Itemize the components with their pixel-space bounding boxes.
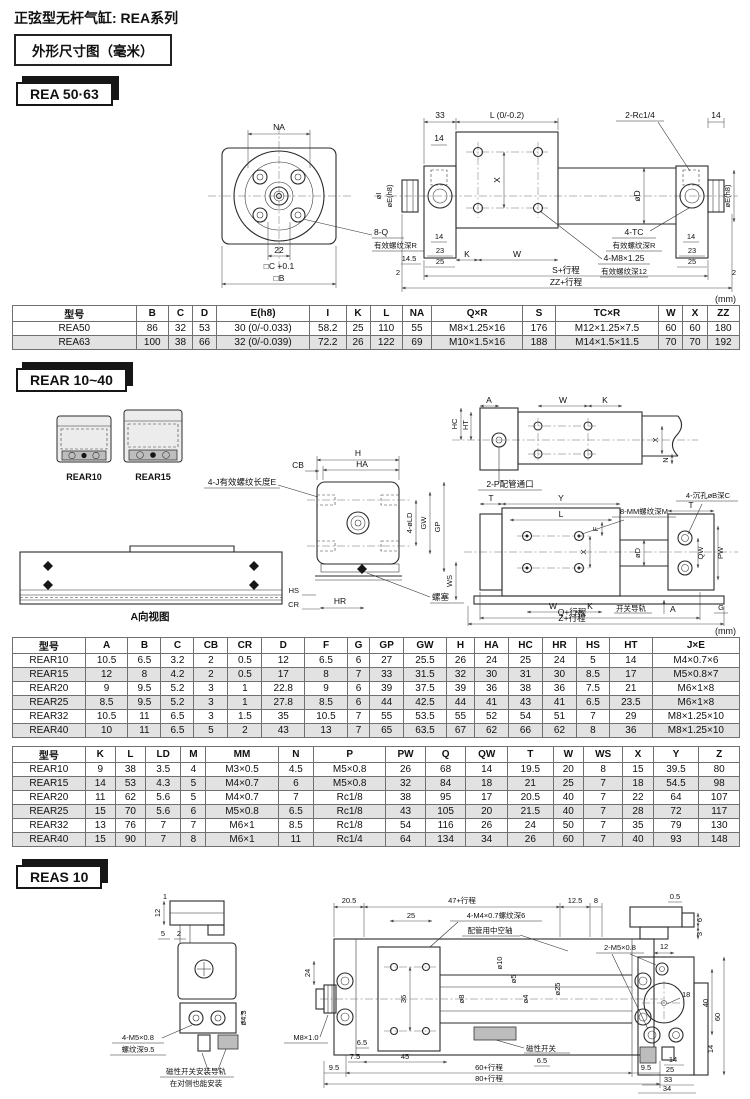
right-end-bracket (676, 166, 708, 258)
column-header: LD (146, 747, 181, 763)
value-cell: 10.5 (85, 710, 128, 724)
column-header: C (168, 306, 192, 322)
column-header: K (85, 747, 115, 763)
dim-s-stroke: S+行程 (552, 265, 580, 275)
value-cell: 27 (370, 654, 404, 668)
dim-t2: T (688, 500, 693, 510)
value-cell: 43 (509, 696, 543, 710)
column-header: D (262, 638, 305, 654)
value-cell: 10.5 (85, 654, 128, 668)
dim-25: 25 (407, 911, 415, 920)
value-cell: 93 (653, 833, 699, 847)
column-header: HS (576, 638, 609, 654)
column-header: C (161, 638, 194, 654)
column-header: M (181, 747, 206, 763)
value-cell: Rc1/8 (314, 791, 386, 805)
value-cell: 8.5 (305, 696, 348, 710)
column-header: CB (194, 638, 228, 654)
header-row: 型号KLLDMMMNPPWQQWTWWSXYZ (13, 747, 740, 763)
value-cell: 64 (386, 833, 425, 847)
value-cell: 11 (128, 724, 161, 738)
thread-note-95: 螺纹深9.5 (122, 1044, 155, 1054)
dim-6: 6 (695, 918, 704, 922)
rea-side-view: øI øE(h8) X øD øE(h8) 3 (374, 110, 738, 292)
dim-3: 3 (695, 932, 704, 936)
value-cell: 66 (509, 724, 543, 738)
dim-k2: K (602, 395, 608, 405)
dim-o8: ø8 (457, 995, 466, 1004)
value-cell: 148 (699, 833, 740, 847)
dim-od2: øD (633, 547, 642, 558)
value-cell: 30 (475, 668, 509, 682)
value-cell: 58.2 (310, 322, 347, 336)
value-cell: 98 (699, 777, 740, 791)
column-header: 型号 (13, 747, 86, 763)
value-cell: 90 (115, 833, 145, 847)
dim-75: 7.5 (350, 1052, 360, 1061)
value-cell: 38 (115, 763, 145, 777)
model-cell: REAR25 (13, 805, 86, 819)
column-header: D (193, 306, 217, 322)
dim-14-topright: 14 (711, 110, 721, 120)
value-cell: 4.3 (146, 777, 181, 791)
reas-body (178, 943, 236, 999)
value-cell: 134 (425, 833, 466, 847)
value-cell: 100 (136, 336, 168, 350)
column-header: Z (699, 747, 740, 763)
value-cell: 188 (523, 336, 555, 350)
value-cell: 30 (0/-0.033) (217, 322, 310, 336)
model-cell: REAR15 (13, 777, 86, 791)
rear-top-right-view: HC HT A W K X N 2-P配管通口 (450, 395, 698, 490)
dim-25-left: 25 (436, 257, 444, 266)
value-cell: 7 (347, 710, 369, 724)
value-cell: 32 (386, 777, 425, 791)
table-row: REAR151284.220.517873331.5323031308.517M… (13, 668, 740, 682)
value-cell: 9 (305, 682, 348, 696)
table-row: REA63100386632 (0/-0.039)72.22612269M10×… (13, 336, 740, 350)
value-cell: 25.5 (404, 654, 447, 668)
dim-23-left: 23 (436, 246, 444, 255)
column-header: H (446, 638, 474, 654)
value-cell: 38 (168, 336, 192, 350)
switch-rail (474, 596, 724, 604)
value-cell: 21 (507, 777, 553, 791)
dim-hs: HS (289, 586, 299, 595)
dim-o5: ø5 (509, 975, 518, 984)
dim-w2: W (559, 395, 567, 405)
value-cell: 24 (507, 819, 553, 833)
subtitle-box: 外形尺寸图（毫米） (14, 34, 172, 66)
value-cell: 176 (523, 322, 555, 336)
dim-od: øD (632, 190, 642, 201)
value-cell: 8.5 (278, 819, 313, 833)
value-cell: 64 (653, 791, 699, 805)
value-cell: 5 (576, 654, 609, 668)
rea-dimension-table: 型号BCDE(h8)IKLNAQ×RSTC×RWXZZREA5086325330… (12, 305, 740, 350)
value-cell: 76 (115, 819, 145, 833)
dim-k3: K (587, 601, 593, 611)
value-cell: 7 (278, 791, 313, 805)
value-cell: 5 (194, 724, 228, 738)
rear-bottom-right-view: T Y L 8-MM螺纹深M 4-沉孔øB深C T F X øD QW PW W (464, 491, 738, 626)
column-header: E(h8) (217, 306, 310, 322)
switch-rail-note-2: 在对侧也能安装 (170, 1078, 223, 1088)
value-cell: 8.5 (85, 696, 128, 710)
value-cell: 10 (85, 724, 128, 738)
value-cell: 3 (194, 682, 228, 696)
value-cell: 14 (85, 777, 115, 791)
model-cell: REA63 (13, 336, 137, 350)
dim-65a: 6.5 (357, 1038, 367, 1047)
value-cell: 14 (466, 763, 508, 777)
value-cell: 5.6 (146, 805, 181, 819)
dim-na: NA (273, 122, 285, 132)
left-end-bracket (424, 166, 456, 258)
dim-2: 2 (177, 929, 181, 938)
plug-label: 螺塞 (432, 592, 450, 602)
value-cell: 3.5 (146, 763, 181, 777)
dim-h: H (355, 448, 361, 458)
dim-x2: X (651, 437, 660, 442)
value-cell: 25 (346, 322, 370, 336)
table-row: REAR32137677M6×18.5Rc1/85411626245073579… (13, 819, 740, 833)
model-cell: REAR20 (13, 682, 86, 696)
column-header: CR (228, 638, 262, 654)
value-cell: 62 (475, 724, 509, 738)
value-cell: M4×0.7×6 (652, 654, 739, 668)
value-cell: 13 (305, 724, 348, 738)
column-header: B (136, 306, 168, 322)
value-cell: 7 (583, 833, 622, 847)
thread-label-m8: M8×1.0 (293, 1033, 318, 1042)
value-cell: 34 (466, 833, 508, 847)
value-cell: 22.8 (262, 682, 305, 696)
column-header: F (305, 638, 348, 654)
value-cell: 107 (699, 791, 740, 805)
rear-drawing: REAR10 REAR15 H HA CB 4-J有效螺纹长度E (12, 394, 738, 626)
dim-oi: øI (374, 193, 383, 200)
dim-2-right: 2 (732, 268, 736, 277)
dim-60-stroke: 60+行程 (475, 1062, 503, 1072)
value-cell: 105 (425, 805, 466, 819)
value-cell: 53 (115, 777, 145, 791)
value-cell: 41 (542, 696, 576, 710)
dim-c: □C +0.1 (264, 261, 295, 271)
value-cell: 40 (553, 791, 583, 805)
model-cell: REAR10 (13, 763, 86, 777)
model-cell: REAR40 (13, 833, 86, 847)
value-cell: 5 (181, 777, 206, 791)
dim-pw: PW (716, 546, 725, 559)
dim-zz-stroke: ZZ+行程 (550, 277, 583, 287)
dim-34: 34 (663, 1084, 671, 1093)
dim-t1: T (488, 493, 493, 503)
value-cell: M10×1.5×16 (431, 336, 522, 350)
page-title: 正弦型无杆气缸: REA系列 (14, 8, 740, 28)
column-header: ZZ (707, 306, 740, 322)
value-cell: 69 (402, 336, 431, 350)
value-cell: 35 (623, 819, 653, 833)
value-cell: 6.5 (305, 654, 348, 668)
dim-o43: ø4.3 (239, 1010, 248, 1025)
value-cell: 26 (466, 819, 508, 833)
value-cell: 63.5 (404, 724, 447, 738)
column-header: T (507, 747, 553, 763)
table-row: REAR3210.5116.531.53510.575553.555525451… (13, 710, 740, 724)
column-header: S (523, 306, 555, 322)
thread-label-tc: 4-TC (625, 227, 644, 237)
dim-14b: 14 (669, 1055, 677, 1064)
value-cell: 0.5 (228, 654, 262, 668)
column-header: PW (386, 747, 425, 763)
dim-w3: W (549, 601, 557, 611)
value-cell: Rc1/8 (314, 819, 386, 833)
value-cell: M12×1.25×7.5 (555, 322, 659, 336)
value-cell: 6 (347, 682, 369, 696)
value-cell: 51 (542, 710, 576, 724)
dim-40: 40 (701, 999, 710, 1007)
table-row: REAR4010116.552431376563.567626662836M8×… (13, 724, 740, 738)
reas-mid-view: 20.5 47+行程 12.5 8 25 4-M4×0.7螺纹深6 配管用中空轴 (284, 895, 664, 1088)
value-cell: 60 (659, 322, 683, 336)
dim-g: G (718, 603, 724, 612)
dim-14-port: 14 (434, 133, 444, 143)
model-cell: REAR32 (13, 710, 86, 724)
value-cell: 11 (128, 710, 161, 724)
value-cell: 26 (386, 763, 425, 777)
value-cell: 3 (194, 710, 228, 724)
dim-12: 12 (153, 909, 162, 917)
value-cell: 41 (475, 696, 509, 710)
value-cell: 21 (609, 682, 652, 696)
rear-dimension-table-1: 型号ABCCBCRDFGGPGWHHAHCHRHSHTJ×EREAR1010.5… (12, 637, 740, 738)
dim-18: 18 (682, 990, 690, 999)
value-cell: 12 (85, 668, 128, 682)
column-header: QW (466, 747, 508, 763)
value-cell: M5×0.8 (206, 805, 278, 819)
value-cell: 5.2 (161, 682, 194, 696)
column-header: MM (206, 747, 278, 763)
value-cell: M8×1.25×10 (652, 710, 739, 724)
value-cell: 43 (262, 724, 305, 738)
value-cell: 62 (115, 791, 145, 805)
value-cell: 9 (85, 682, 128, 696)
value-cell: 15 (623, 763, 653, 777)
value-cell: 18 (466, 777, 508, 791)
value-cell: 39 (446, 682, 474, 696)
value-cell: 39.5 (653, 763, 699, 777)
value-cell: 3 (194, 696, 228, 710)
value-cell: 70 (115, 805, 145, 819)
value-cell: 7 (583, 819, 622, 833)
rear-dimension-table-2: 型号KLLDMMMNPPWQQWTWWSXYZREAR109383.54M3×0… (12, 746, 740, 847)
value-cell: 3.2 (161, 654, 194, 668)
value-cell: 17 (609, 668, 652, 682)
dim-l: L (0/-0.2) (490, 110, 524, 120)
value-cell: 79 (653, 819, 699, 833)
column-header: P (314, 747, 386, 763)
dim-14-right: 14 (687, 232, 695, 241)
value-cell: M6×1×8 (652, 682, 739, 696)
value-cell: 192 (707, 336, 740, 350)
column-header: A (85, 638, 128, 654)
value-cell: 11 (85, 791, 115, 805)
value-cell: 26 (446, 654, 474, 668)
value-cell: 18 (623, 777, 653, 791)
value-cell: 10.5 (305, 710, 348, 724)
value-cell: 5.6 (146, 791, 181, 805)
value-cell: 60 (683, 322, 707, 336)
value-cell: 7 (347, 724, 369, 738)
value-cell: 6 (347, 654, 369, 668)
dim-oe-right: øE(h8) (723, 184, 732, 207)
dim-5: 5 (161, 929, 165, 938)
value-cell: 32 (168, 322, 192, 336)
value-cell: 29 (609, 710, 652, 724)
product-label-rear10: REAR10 (66, 472, 102, 482)
value-cell: 36 (609, 724, 652, 738)
value-cell: 130 (699, 819, 740, 833)
value-cell: 86 (136, 322, 168, 336)
dim-33b: 33 (664, 1075, 672, 1084)
table-row: REAR2515705.66M5×0.86.5Rc1/8431052021.54… (13, 805, 740, 819)
column-header: J×E (652, 638, 739, 654)
value-cell: 70 (659, 336, 683, 350)
value-cell: 21.5 (507, 805, 553, 819)
value-cell: 7 (583, 777, 622, 791)
value-cell: 5.2 (161, 696, 194, 710)
column-header: X (683, 306, 707, 322)
dim-12b: 12 (660, 942, 668, 951)
value-cell: 12 (262, 654, 305, 668)
dim-95-left: 9.5 (329, 1063, 339, 1072)
magnetic-switch-block (474, 1027, 516, 1040)
dim-1: 1 (163, 892, 167, 901)
thread-label-m8: 4-M8×1.25 (604, 253, 645, 263)
value-cell: 7 (583, 791, 622, 805)
value-cell: 2 (228, 724, 262, 738)
column-header: GW (404, 638, 447, 654)
value-cell: 6.5 (576, 696, 609, 710)
dim-cb: CB (292, 460, 304, 470)
value-cell: 25 (553, 777, 583, 791)
dim-hr: HR (334, 596, 346, 606)
value-cell: 36 (475, 682, 509, 696)
value-cell: 32 (446, 668, 474, 682)
dim-ws: WS (445, 575, 454, 587)
table-row: REAR2099.55.23122.8963937.5393638367.521… (13, 682, 740, 696)
value-cell: 2 (194, 668, 228, 682)
value-cell: 67 (446, 724, 474, 738)
model-cell: REAR10 (13, 654, 86, 668)
slide-plate (456, 132, 558, 228)
dim-gp: GP (433, 522, 442, 533)
value-cell: 43 (386, 805, 425, 819)
value-cell: 6 (347, 696, 369, 710)
a-view-label: A向视图 (130, 610, 169, 623)
section-tag-rea: REA 50·63 (16, 82, 113, 106)
value-cell: 26 (346, 336, 370, 350)
column-header: HR (542, 638, 576, 654)
value-cell: 6.5 (161, 724, 194, 738)
column-header: HA (475, 638, 509, 654)
value-cell: 35 (262, 710, 305, 724)
value-cell: 2 (194, 654, 228, 668)
value-cell: 28 (623, 805, 653, 819)
value-cell: 19.5 (507, 763, 553, 777)
column-header: I (310, 306, 347, 322)
thread-note: 有效螺纹深R (374, 240, 417, 250)
thread-label-4j: 4-J有效螺纹长度E (208, 477, 277, 487)
value-cell: 7 (146, 833, 181, 847)
value-cell: 15 (85, 833, 115, 847)
value-cell: Rc1/4 (314, 833, 386, 847)
value-cell: 8 (128, 668, 161, 682)
column-header: HC (509, 638, 543, 654)
value-cell: 1 (228, 696, 262, 710)
value-cell: 27.8 (262, 696, 305, 710)
value-cell: 122 (370, 336, 402, 350)
value-cell: 17 (466, 791, 508, 805)
value-cell: 95 (425, 791, 466, 805)
product-label-rear15: REAR15 (135, 472, 171, 482)
reas-left-view: 1 12 5 2 ø4.3 4-M5×0.8 螺纹深9.5 磁性开关安装导轨 在 (110, 892, 248, 1088)
value-cell: 22 (623, 791, 653, 805)
value-cell: 4.2 (161, 668, 194, 682)
value-cell: 31.5 (404, 668, 447, 682)
value-cell: M4×0.7 (206, 791, 278, 805)
value-cell: 40 (623, 833, 653, 847)
model-cell: REA50 (13, 322, 137, 336)
table-row: REAR109383.54M3×0.54.5M5×0.826681419.520… (13, 763, 740, 777)
value-cell: 7 (347, 668, 369, 682)
value-cell: 180 (707, 322, 740, 336)
table-row: REAR1010.56.53.220.5126.562725.526242524… (13, 654, 740, 668)
dim-65b: 6.5 (537, 1056, 547, 1065)
dim-ht: HT (461, 420, 470, 430)
table-row: REAR2011625.65M4×0.77Rc1/838951720.54072… (13, 791, 740, 805)
value-cell: M4×0.7 (206, 777, 278, 791)
value-cell: 52 (475, 710, 509, 724)
switch-rail-note-1: 磁性开关安装导轨 (166, 1066, 226, 1076)
value-cell: 116 (425, 819, 466, 833)
dim-qw: QW (696, 546, 705, 560)
model-cell: REAR40 (13, 724, 86, 738)
model-cell: REAR32 (13, 819, 86, 833)
column-header: HT (609, 638, 652, 654)
value-cell: 6 (181, 805, 206, 819)
dim-k: K (464, 249, 470, 259)
rea-drawing: NA 22 □C +0.1 □B 8-Q 有效螺纹深R øI øE(h8) (12, 108, 738, 294)
dim-b: □B (274, 273, 285, 283)
value-cell: M5×0.8 (314, 763, 386, 777)
value-cell: 6.5 (128, 654, 161, 668)
value-cell: 1 (228, 682, 262, 696)
value-cell: 8 (583, 763, 622, 777)
header-row: 型号BCDE(h8)IKLNAQ×RSTC×RWXZZ (13, 306, 740, 322)
value-cell: 17 (262, 668, 305, 682)
value-cell: 26 (507, 833, 553, 847)
value-cell: 7 (181, 819, 206, 833)
value-cell: 33 (370, 668, 404, 682)
value-cell: 5 (181, 791, 206, 805)
value-cell: 30 (542, 668, 576, 682)
value-cell: 24 (542, 654, 576, 668)
value-cell: 37.5 (404, 682, 447, 696)
value-cell: 72.2 (310, 336, 347, 350)
dim-22: 22 (274, 245, 284, 255)
